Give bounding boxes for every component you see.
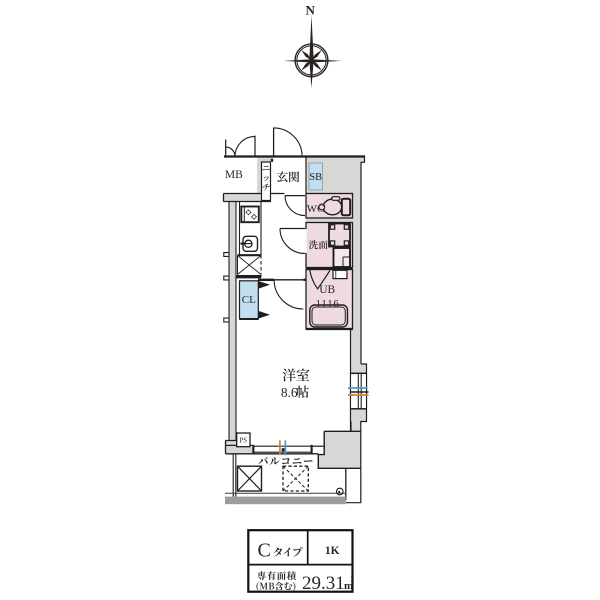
svg-text:N: N [306, 3, 316, 18]
svg-text:C: C [258, 539, 271, 561]
svg-text:SB: SB [309, 172, 322, 183]
svg-text:29.31: 29.31 [302, 573, 345, 594]
svg-text:2: 2 [351, 576, 355, 584]
svg-text:8.6: 8.6 [281, 385, 298, 400]
svg-text:1116: 1116 [316, 298, 340, 310]
svg-text:MB: MB [225, 169, 243, 181]
svg-text:WC: WC [307, 203, 325, 215]
svg-text:UB: UB [319, 284, 335, 296]
svg-text:CL: CL [242, 294, 256, 306]
svg-text:1K: 1K [325, 545, 340, 557]
svg-text:PS: PS [240, 437, 248, 444]
